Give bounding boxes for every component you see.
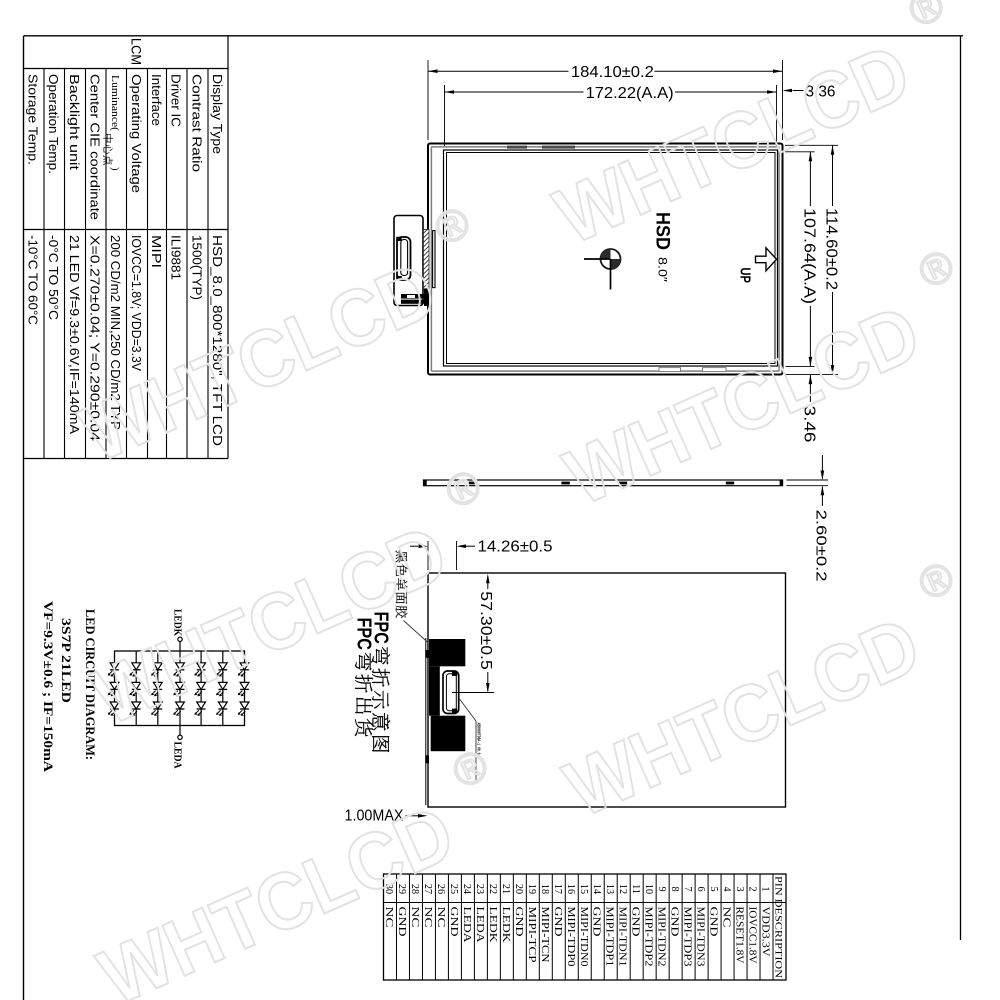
svg-text:MIPI: MIPI [149, 235, 164, 268]
svg-text:GND: GND [708, 907, 719, 937]
svg-text:GND: GND [513, 907, 524, 937]
svg-text:GND: GND [591, 907, 602, 937]
svg-text:14: 14 [591, 884, 602, 894]
svg-text:12: 12 [617, 884, 628, 894]
svg-text:LEDK: LEDK [500, 907, 511, 944]
svg-text:15: 15 [578, 884, 589, 894]
svg-text:2: 2 [747, 886, 758, 891]
svg-text:LEDA: LEDA [461, 907, 472, 944]
svg-text:14.26±0.5: 14.26±0.5 [478, 539, 553, 556]
svg-text:Operating Voltage: Operating Voltage [129, 74, 144, 193]
svg-text:GND: GND [669, 907, 680, 937]
svg-text:Display Type: Display Type [210, 74, 225, 154]
svg-text:107.64(A.A): 107.64(A.A) [801, 208, 818, 304]
svg-text:IOVCC=1.8V; VDD=3.3V: IOVCC=1.8V; VDD=3.3V [129, 235, 144, 371]
svg-text:Driver IC: Driver IC [169, 74, 184, 127]
svg-text:LEDA: LEDA [172, 742, 183, 769]
svg-text:Storage Temp.: Storage Temp. [26, 74, 41, 165]
svg-text:GND: GND [552, 907, 563, 937]
svg-text:5: 5 [708, 886, 719, 891]
svg-text:NC: NC [383, 907, 394, 928]
svg-text:NC: NC [721, 907, 732, 928]
svg-text:Center CIE coordinate: Center CIE coordinate [88, 74, 103, 220]
svg-text:MIPI-TDP2: MIPI-TDP2 [643, 907, 654, 967]
svg-text:10: 10 [643, 884, 654, 894]
svg-text:18: 18 [539, 884, 550, 894]
svg-text:RESET1.8V: RESET1.8V [734, 907, 745, 965]
svg-text:Contrast Ratio: Contrast Ratio [189, 74, 204, 172]
svg-text:LEDK: LEDK [487, 907, 498, 944]
svg-text:MIPI-TDN0: MIPI-TDN0 [578, 907, 589, 967]
svg-text:2.60±0.2: 2.60±0.2 [812, 510, 829, 582]
svg-text:23: 23 [474, 884, 485, 894]
svg-text:4: 4 [721, 886, 732, 891]
svg-text:GND: GND [448, 907, 459, 937]
svg-text:7: 7 [682, 886, 693, 891]
svg-text:VDD3.3V: VDD3.3V [760, 907, 771, 958]
svg-text:184.10±0.2: 184.10±0.2 [571, 64, 654, 81]
svg-text:11: 11 [630, 884, 641, 894]
svg-text:8: 8 [669, 886, 680, 891]
svg-text:LCM: LCM [129, 38, 144, 65]
svg-text:MIPI-TDP1: MIPI-TDP1 [604, 907, 615, 967]
svg-text:1: 1 [760, 886, 771, 891]
svg-text:Backlight unit: Backlight unit [67, 74, 82, 170]
svg-text:9: 9 [656, 886, 667, 891]
svg-text:6: 6 [695, 886, 706, 891]
svg-text:ILI9881: ILI9881 [169, 235, 184, 280]
svg-text:21: 21 [500, 884, 511, 894]
svg-text:MIPI-TDP3: MIPI-TDP3 [682, 907, 693, 967]
svg-text:24: 24 [461, 884, 472, 894]
svg-text:19: 19 [526, 884, 537, 894]
svg-text:NC: NC [409, 907, 420, 928]
svg-text:16: 16 [565, 884, 576, 894]
svg-text:LEDA: LEDA [474, 907, 485, 944]
svg-text:MIPI-TDN3: MIPI-TDN3 [695, 907, 706, 967]
svg-text:MIPI-TDN2: MIPI-TDN2 [656, 907, 667, 967]
svg-text:25: 25 [448, 884, 459, 894]
svg-text:UP: UP [737, 268, 754, 284]
svg-text:57.30±0.5: 57.30±0.5 [477, 591, 494, 670]
svg-text:MIPI-TCN: MIPI-TCN [539, 907, 550, 963]
svg-text:MIPI-TCP: MIPI-TCP [526, 907, 537, 964]
svg-text:1500(TYP): 1500(TYP) [189, 235, 204, 300]
svg-text:8.0″: 8.0″ [656, 257, 668, 282]
svg-text:Luminance(: Luminance( [109, 75, 120, 132]
svg-text:26: 26 [435, 884, 446, 894]
svg-text:17: 17 [552, 884, 563, 894]
svg-text:IOVCC1.8V: IOVCC1.8V [747, 907, 758, 965]
svg-text:13: 13 [604, 884, 615, 894]
svg-text:): ) [109, 167, 120, 171]
svg-text:Operation Temp.: Operation Temp. [46, 74, 61, 174]
svg-text:-0°C TO 50°C: -0°C TO 50°C [46, 235, 61, 320]
svg-text:Interface: Interface [149, 74, 164, 126]
svg-text:114.60±0.2: 114.60±0.2 [823, 208, 840, 290]
svg-text:NC: NC [435, 907, 446, 928]
svg-text:PIN DESCRIPTION: PIN DESCRIPTION [773, 876, 783, 978]
svg-text:22: 22 [487, 884, 498, 894]
svg-text:NC: NC [422, 907, 433, 928]
svg-text:20: 20 [513, 884, 524, 894]
svg-text:GND: GND [630, 907, 641, 937]
svg-text:172.22(A.A): 172.22(A.A) [586, 85, 674, 102]
svg-text:GND: GND [396, 907, 407, 937]
svg-text:3: 3 [734, 886, 745, 891]
svg-text:MIPI-TDN1: MIPI-TDN1 [617, 907, 628, 967]
svg-text:VF=9.3V±0.6 ; IF=150mA: VF=9.3V±0.6 ; IF=150mA [41, 601, 55, 772]
svg-text:MIPI-TDP0: MIPI-TDP0 [565, 907, 576, 967]
svg-text:-10°C TO 60°C: -10°C TO 60°C [26, 235, 41, 325]
svg-text:3S7P 21LED: 3S7P 21LED [59, 618, 73, 703]
